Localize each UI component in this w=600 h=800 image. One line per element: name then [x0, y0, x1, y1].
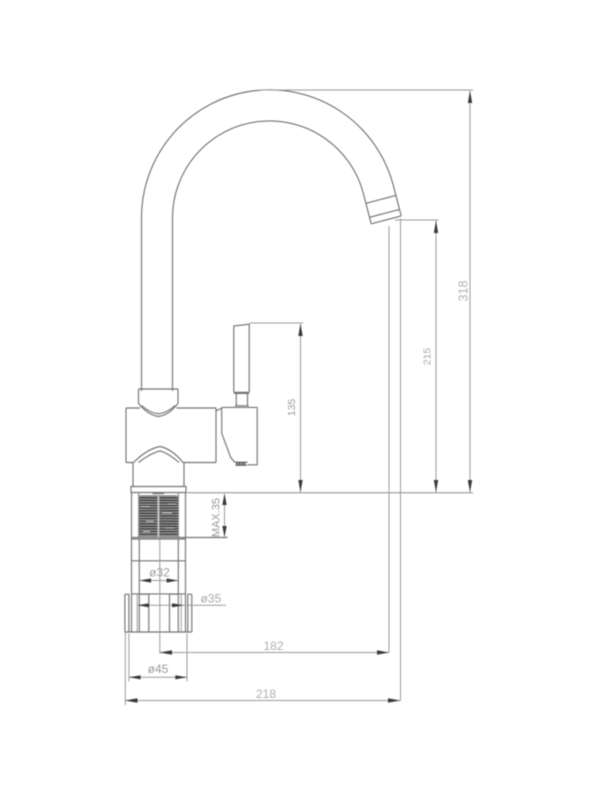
svg-text:135: 135 [286, 399, 298, 417]
svg-text:MAX.35: MAX.35 [211, 498, 223, 537]
svg-text:218: 218 [256, 687, 276, 701]
svg-text:ø35: ø35 [200, 591, 221, 605]
svg-text:ø32: ø32 [149, 565, 170, 579]
svg-text:318: 318 [457, 281, 471, 302]
svg-text:182: 182 [263, 639, 283, 653]
svg-text:ø45: ø45 [148, 662, 169, 676]
svg-text:215: 215 [422, 348, 434, 366]
